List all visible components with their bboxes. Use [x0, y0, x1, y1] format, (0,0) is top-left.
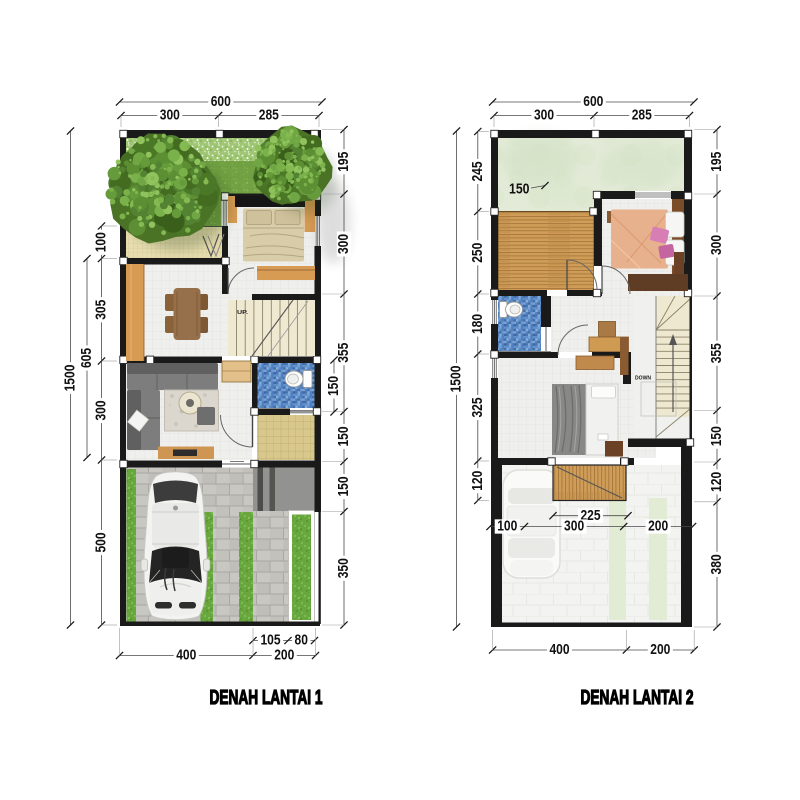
- svg-text:UP.: UP.: [237, 310, 248, 316]
- svg-text:100: 100: [497, 519, 517, 535]
- svg-text:400: 400: [549, 642, 569, 658]
- svg-text:200: 200: [648, 519, 668, 535]
- svg-text:200: 200: [274, 648, 294, 664]
- svg-text:355: 355: [709, 343, 725, 363]
- svg-text:245: 245: [470, 161, 486, 181]
- svg-text:180: 180: [470, 314, 486, 334]
- svg-text:400: 400: [176, 648, 196, 664]
- svg-text:285: 285: [632, 108, 652, 124]
- svg-text:200: 200: [650, 642, 670, 658]
- svg-text:600: 600: [583, 94, 603, 110]
- svg-text:195: 195: [336, 152, 352, 172]
- svg-text:300: 300: [94, 400, 110, 420]
- svg-text:1500: 1500: [63, 365, 79, 392]
- svg-text:150: 150: [336, 476, 352, 496]
- svg-text:300: 300: [336, 234, 352, 254]
- svg-text:150: 150: [326, 376, 342, 396]
- svg-text:325: 325: [470, 397, 486, 417]
- svg-text:150: 150: [336, 426, 352, 446]
- svg-text:300: 300: [160, 108, 180, 124]
- svg-text:195: 195: [709, 152, 725, 172]
- svg-text:380: 380: [709, 554, 725, 574]
- svg-text:250: 250: [470, 243, 486, 263]
- svg-text:150: 150: [509, 182, 530, 198]
- svg-text:300: 300: [709, 235, 725, 255]
- svg-text:285: 285: [259, 108, 279, 124]
- svg-text:80: 80: [295, 633, 308, 649]
- svg-text:305: 305: [94, 300, 110, 320]
- svg-text:300: 300: [564, 519, 584, 535]
- svg-text:1500: 1500: [449, 366, 465, 393]
- svg-text:120: 120: [709, 472, 725, 492]
- svg-text:300: 300: [534, 108, 554, 124]
- svg-text:120: 120: [470, 471, 486, 491]
- svg-text:DENAH LANTAI 2: DENAH LANTAI 2: [581, 686, 694, 709]
- svg-text:150: 150: [709, 426, 725, 446]
- svg-text:355: 355: [336, 343, 352, 363]
- svg-text:105: 105: [260, 633, 280, 649]
- svg-text:100: 100: [94, 232, 110, 252]
- svg-text:605: 605: [79, 348, 95, 368]
- svg-text:DOWN: DOWN: [635, 376, 651, 382]
- svg-text:600: 600: [211, 94, 231, 110]
- svg-text:DENAH LANTAI 1: DENAH LANTAI 1: [210, 686, 323, 709]
- svg-text:350: 350: [336, 558, 352, 578]
- svg-text:500: 500: [94, 532, 110, 552]
